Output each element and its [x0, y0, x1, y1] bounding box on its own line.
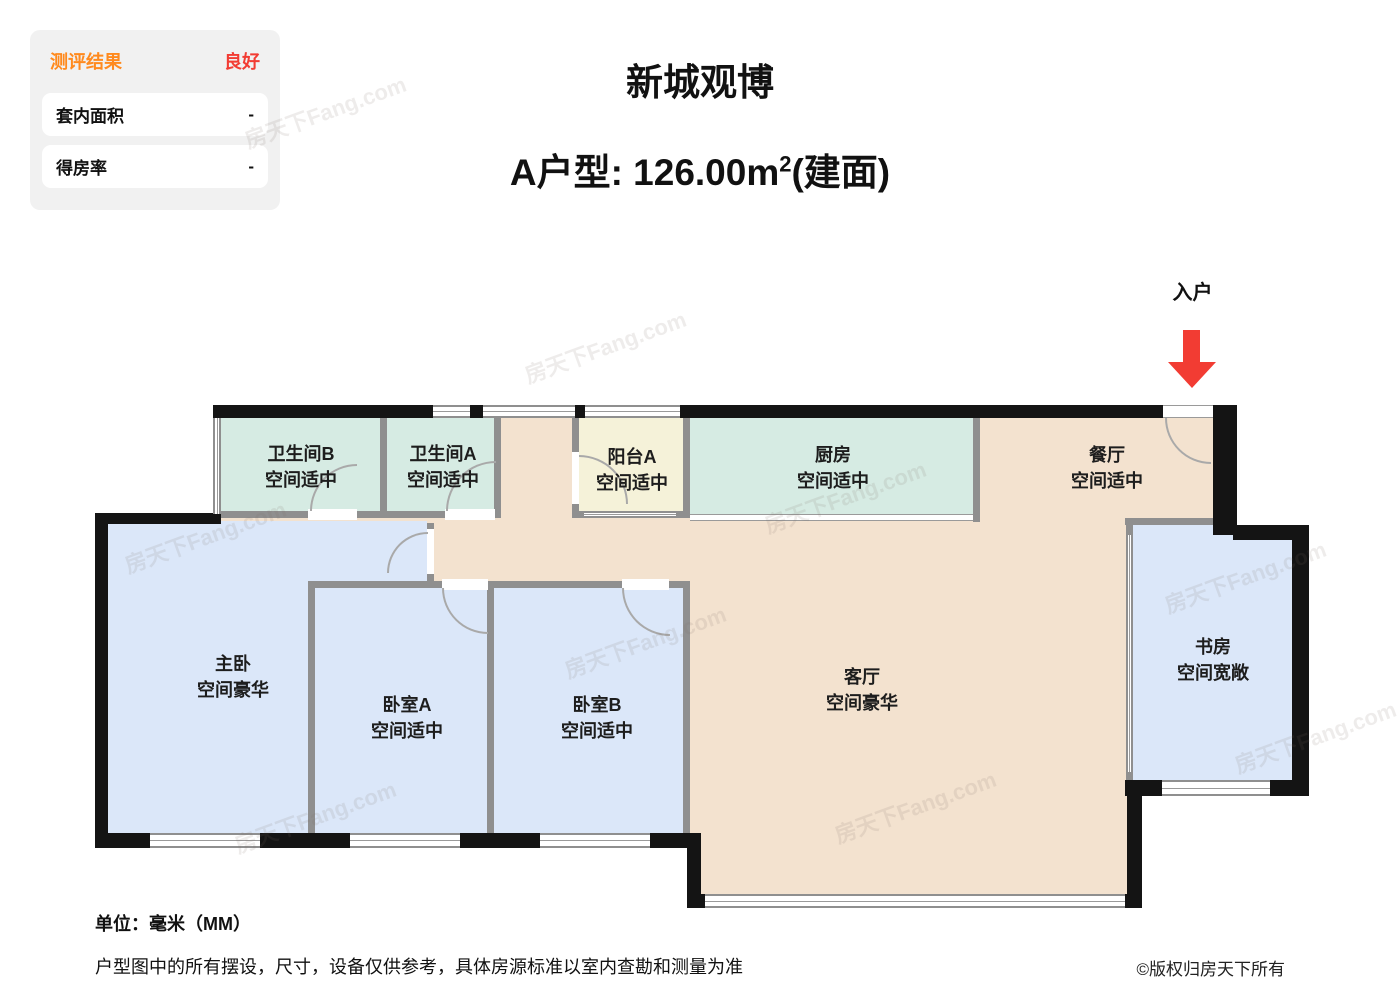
- door-opening: [572, 452, 579, 504]
- wall-segment: [308, 581, 315, 833]
- window: [584, 511, 676, 518]
- page-subtitle: A户型: 126.00m2(建面): [0, 142, 1400, 196]
- label-master-bedroom: 主卧空间豪华: [197, 651, 269, 703]
- wall-segment: [973, 415, 980, 522]
- label-bedroom-a: 卧室A空间适中: [371, 692, 443, 744]
- disclaimer-text: 户型图中的所有摆设，尺寸，设备仅供参考，具体房源标准以室内查勘和测量为准: [95, 953, 743, 979]
- label-study: 书房空间宽敞: [1177, 634, 1249, 686]
- label-bedroom-b: 卧室B空间适中: [561, 692, 633, 744]
- wall-exterior: [1233, 525, 1309, 540]
- wall-exterior: [1213, 405, 1237, 535]
- built-area-suffix: (建面): [791, 152, 890, 193]
- wall-exterior: [213, 405, 1237, 418]
- wall-segment: [380, 410, 387, 518]
- label-bathroom-a: 卫生间A空间适中: [407, 441, 479, 493]
- floorplan-page: 测评结果 良好 套内面积 - 得房率 - 新城观博 A户型: 126.00m2(…: [0, 0, 1400, 1001]
- window: [483, 405, 575, 418]
- label-balcony-a: 阳台A空间适中: [596, 444, 668, 496]
- entrance-arrow-head-icon: [1168, 362, 1216, 388]
- wall-exterior: [95, 513, 108, 846]
- label-living-room: 客厅空间豪华: [826, 664, 898, 716]
- unit-type-text: A户型: 126.00m: [510, 152, 779, 193]
- window: [540, 833, 650, 848]
- window: [433, 405, 470, 418]
- label-bathroom-b: 卫生间B空间适中: [265, 441, 337, 493]
- wall-exterior: [1127, 782, 1142, 908]
- wall-segment: [1126, 525, 1133, 535]
- entrance-arrow-icon: [1183, 330, 1200, 362]
- window: [585, 405, 680, 418]
- window: [705, 894, 1125, 908]
- wall-segment: [683, 418, 690, 518]
- wall-segment: [487, 581, 494, 833]
- door-opening: [427, 529, 434, 574]
- window: [213, 418, 221, 514]
- window: [1162, 780, 1270, 796]
- room-living-fill: [690, 585, 1127, 903]
- entrance-door-opening: [1163, 405, 1213, 418]
- window: [350, 833, 460, 848]
- page-title: 新城观博: [0, 52, 1400, 106]
- window: [1126, 535, 1133, 772]
- entrance-label: 入户: [1120, 276, 1265, 305]
- label-dining: 餐厅空间适中: [1071, 442, 1143, 494]
- watermark: 房天下Fang.com: [520, 302, 691, 390]
- unit-note: 单位：毫米（MM）: [95, 910, 251, 936]
- copyright-text: ©版权归房天下所有: [1136, 955, 1285, 980]
- square-meter-sup: 2: [779, 152, 791, 177]
